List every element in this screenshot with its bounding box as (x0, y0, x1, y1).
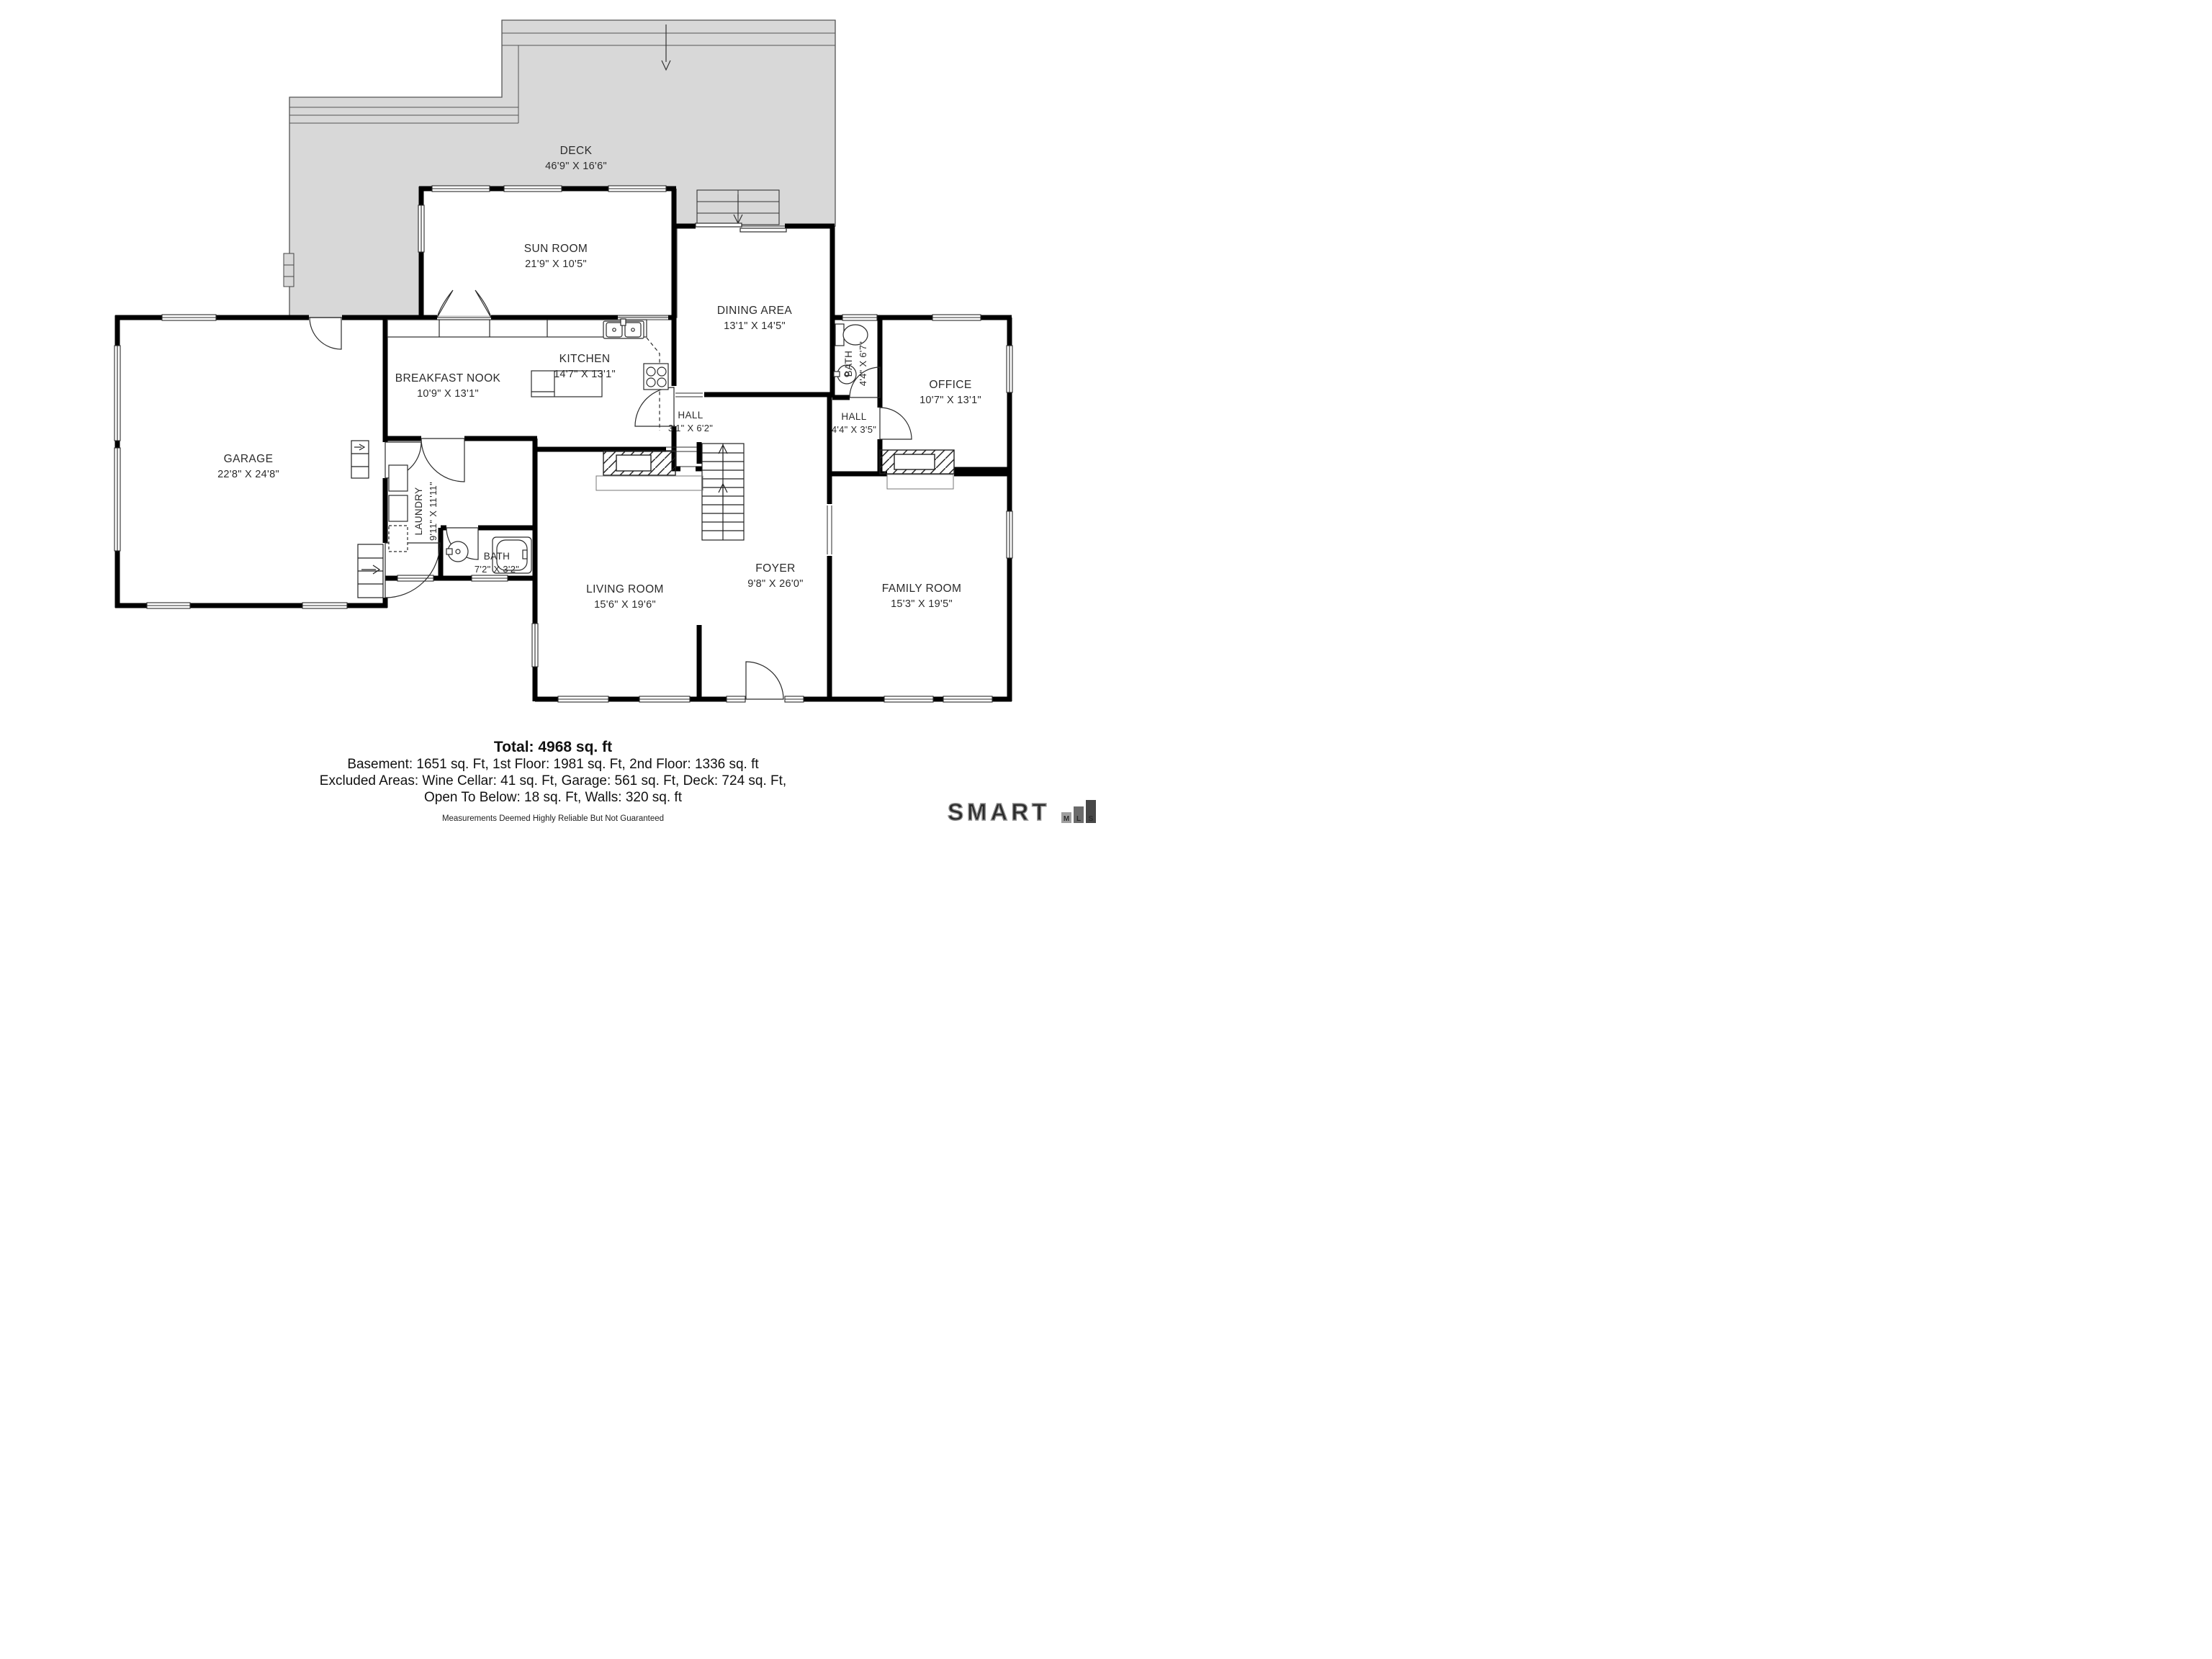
label-office-dims: 10'7" X 13'1" (920, 395, 981, 406)
label-living-dims: 15'6" X 19'6" (594, 599, 656, 611)
label-bath-lower-name: BATH (484, 551, 511, 562)
label-deck-dims: 46'9" X 16'6" (545, 161, 607, 172)
label-foyer-dims: 9'8" X 26'0" (747, 578, 803, 590)
deck-rail (284, 253, 294, 287)
label-laundry-name: LAUNDRY (413, 487, 424, 535)
label-deck-name: DECK (560, 145, 593, 157)
label-hall-upper-dims: 3'1" X 6'2" (668, 423, 713, 433)
summary-floors: Basement: 1651 sq. Ft, 1st Floor: 1981 s… (0, 756, 1106, 773)
label-office-name: OFFICE (929, 379, 971, 391)
label-sunroom-dims: 21'9" X 10'5" (525, 258, 587, 270)
label-kitchen-dims: 14'7" X 13'1" (554, 369, 616, 380)
label-living-name: LIVING ROOM (586, 583, 664, 595)
summary-total: Total: 4968 sq. ft (0, 739, 1106, 756)
label-kitchen-name: KITCHEN (559, 353, 611, 365)
label-bath-upper-name: BATH (843, 351, 854, 377)
label-dining-dims: 13'1" X 14'5" (724, 320, 786, 332)
label-garage-dims: 22'8" X 24'8" (217, 469, 279, 480)
label-family-dims: 15'3" X 19'5" (891, 598, 953, 610)
label-sunroom-name: SUN ROOM (524, 243, 588, 255)
smartmls-logo: SMART M L S (948, 796, 1099, 828)
logo-letter-l: L (1076, 815, 1081, 823)
label-laundry-dims: 9'11" X 11'11" (428, 482, 439, 541)
floor-plan-canvas: DECK 46'9" X 16'6" SUN ROOM 21'9" X 10'5… (0, 0, 1106, 829)
summary-block: Total: 4968 sq. ft Basement: 1651 sq. Ft… (0, 739, 1106, 823)
logo-word: SMART (948, 799, 1050, 825)
label-hall-upper-name: HALL (678, 410, 703, 421)
stairs-layer (351, 441, 744, 598)
fireplace-layer (596, 450, 954, 490)
floorplan-page: DECK 46'9" X 16'6" SUN ROOM 21'9" X 10'5… (0, 0, 1106, 829)
label-hall-right-name: HALL (841, 411, 866, 422)
label-foyer-name: FOYER (755, 562, 795, 575)
summary-excluded-cont: Open To Below: 18 sq. Ft, Walls: 320 sq.… (0, 789, 1106, 806)
label-breakfast-name: BREAKFAST NOOK (395, 372, 501, 385)
label-garage-name: GARAGE (224, 453, 274, 465)
label-breakfast-dims: 10'9" X 13'1" (417, 388, 479, 400)
label-bath-upper-dims: 4'4" X 6'7" (858, 341, 868, 386)
summary-excluded: Excluded Areas: Wine Cellar: 41 sq. Ft, … (0, 773, 1106, 789)
logo-letter-s: S (1089, 815, 1094, 823)
label-family-name: FAMILY ROOM (882, 583, 962, 595)
fixture-layer (387, 319, 868, 573)
label-dining-name: DINING AREA (717, 305, 793, 317)
disclaimer-text: Measurements Deemed Highly Reliable But … (0, 814, 1106, 823)
label-hall-right-dims: 4'4" X 3'5" (832, 424, 876, 435)
logo-letter-m: M (1064, 815, 1069, 823)
smartmls-logo-graphic: SMART M L S (948, 796, 1099, 828)
label-bath-lower-dims: 7'2" X 3'2" (475, 564, 519, 575)
